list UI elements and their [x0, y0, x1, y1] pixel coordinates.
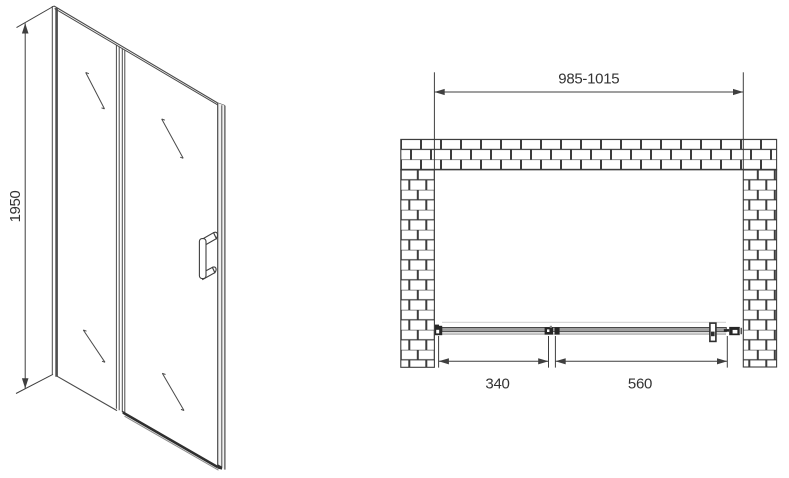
- svg-text:985-1015: 985-1015: [558, 71, 619, 88]
- svg-text:340: 340: [485, 375, 509, 392]
- svg-text:1950: 1950: [7, 191, 24, 223]
- svg-text:560: 560: [628, 375, 652, 392]
